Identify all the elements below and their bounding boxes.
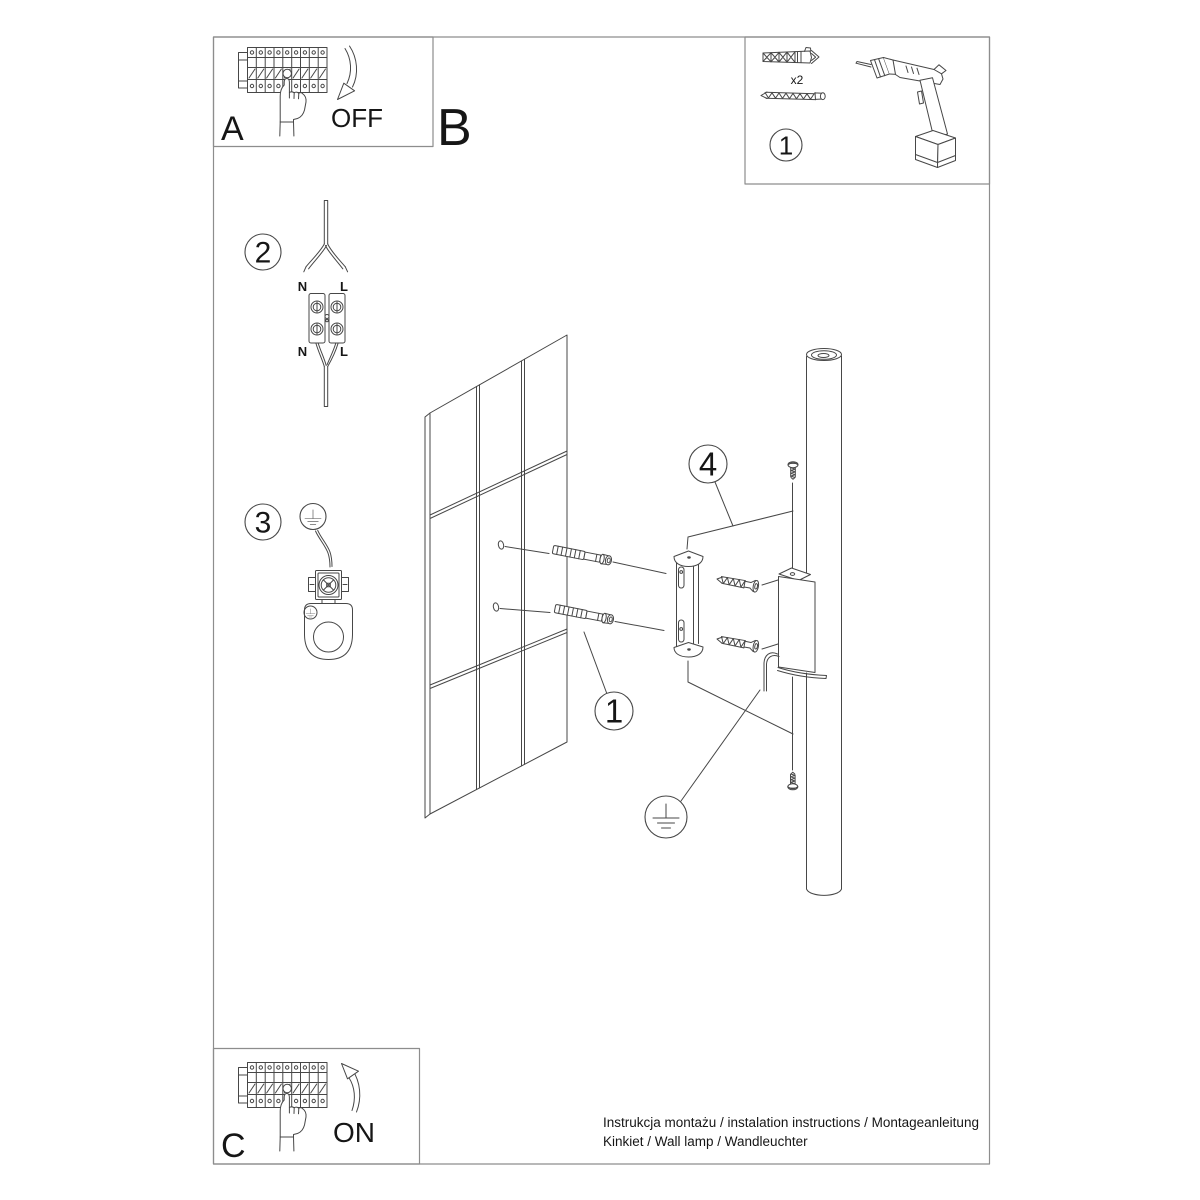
screw-alignment-lines xyxy=(762,580,778,649)
ground-wire-hook xyxy=(764,653,779,691)
parts-box: x2 1 xyxy=(745,37,990,184)
mounting-bracket-illustration xyxy=(674,551,703,657)
terminal-label-l-bottom: L xyxy=(340,344,348,359)
circuit-breaker-icon xyxy=(239,1063,328,1152)
drill-icon xyxy=(856,58,956,168)
step-ground: 3 xyxy=(245,504,353,660)
mount-cover-illustration xyxy=(778,568,827,679)
tiled-wall-illustration xyxy=(425,335,567,818)
fixing-screw-bottom-icon xyxy=(788,772,798,790)
arrow-up-icon xyxy=(342,1064,360,1113)
step-3-number: 3 xyxy=(255,507,272,540)
terminal-label-l-top: L xyxy=(340,279,348,294)
circuit-breaker-icon xyxy=(239,48,328,137)
mounting-screw-icon xyxy=(716,633,760,652)
callout-1-number: 1 xyxy=(605,693,623,730)
anchor-count-label: x2 xyxy=(791,73,804,87)
mains-cable-top xyxy=(304,201,348,272)
ground-wire xyxy=(316,530,333,567)
instruction-drawing: A OFF B x2 1 2 xyxy=(0,0,1200,1200)
terminal-label-n-top: N xyxy=(298,279,307,294)
mains-cable-bottom xyxy=(316,344,338,407)
fixing-screw-top-icon xyxy=(788,462,798,480)
ground-terminal-icon xyxy=(309,571,349,600)
panel-c-breaker-on: C ON xyxy=(214,1049,420,1166)
section-label-b: B xyxy=(437,99,472,157)
sheet-border xyxy=(214,37,990,1164)
power-on-label: ON xyxy=(333,1117,375,1148)
terminal-label-n-bottom: N xyxy=(298,344,307,359)
footer: Instrukcja montażu / instalation instruc… xyxy=(603,1115,979,1149)
footer-line-2: Kinkiet / Wall lamp / Wandleuchter xyxy=(603,1134,808,1149)
ground-callout xyxy=(645,690,760,838)
mounting-screw-icon xyxy=(716,573,760,592)
step-wiring: 2 N L N L xyxy=(245,201,348,407)
panel-c-letter: C xyxy=(221,1127,246,1165)
instruction-sheet: A OFF B x2 1 2 xyxy=(0,0,1200,1200)
bracket-leader-line xyxy=(688,661,793,734)
screw-icon xyxy=(761,92,825,100)
arrow-down-icon xyxy=(338,46,357,100)
anchor-callout: 1 xyxy=(584,632,633,730)
wall-plug-icon xyxy=(763,48,819,64)
step-2-number: 2 xyxy=(255,237,272,270)
panel-a-letter: A xyxy=(221,110,244,148)
mounting-base-icon xyxy=(304,600,353,660)
anchor-alignment-lines xyxy=(613,562,666,631)
mount-callout: 4 xyxy=(687,445,793,549)
panel-a-breaker-off: A OFF xyxy=(214,37,434,148)
callout-4-number: 4 xyxy=(699,446,717,483)
terminal-block-icon xyxy=(309,294,345,344)
parts-step-number: 1 xyxy=(779,131,793,161)
power-off-label: OFF xyxy=(331,103,383,133)
footer-line-1: Instrukcja montażu / instalation instruc… xyxy=(603,1115,979,1130)
